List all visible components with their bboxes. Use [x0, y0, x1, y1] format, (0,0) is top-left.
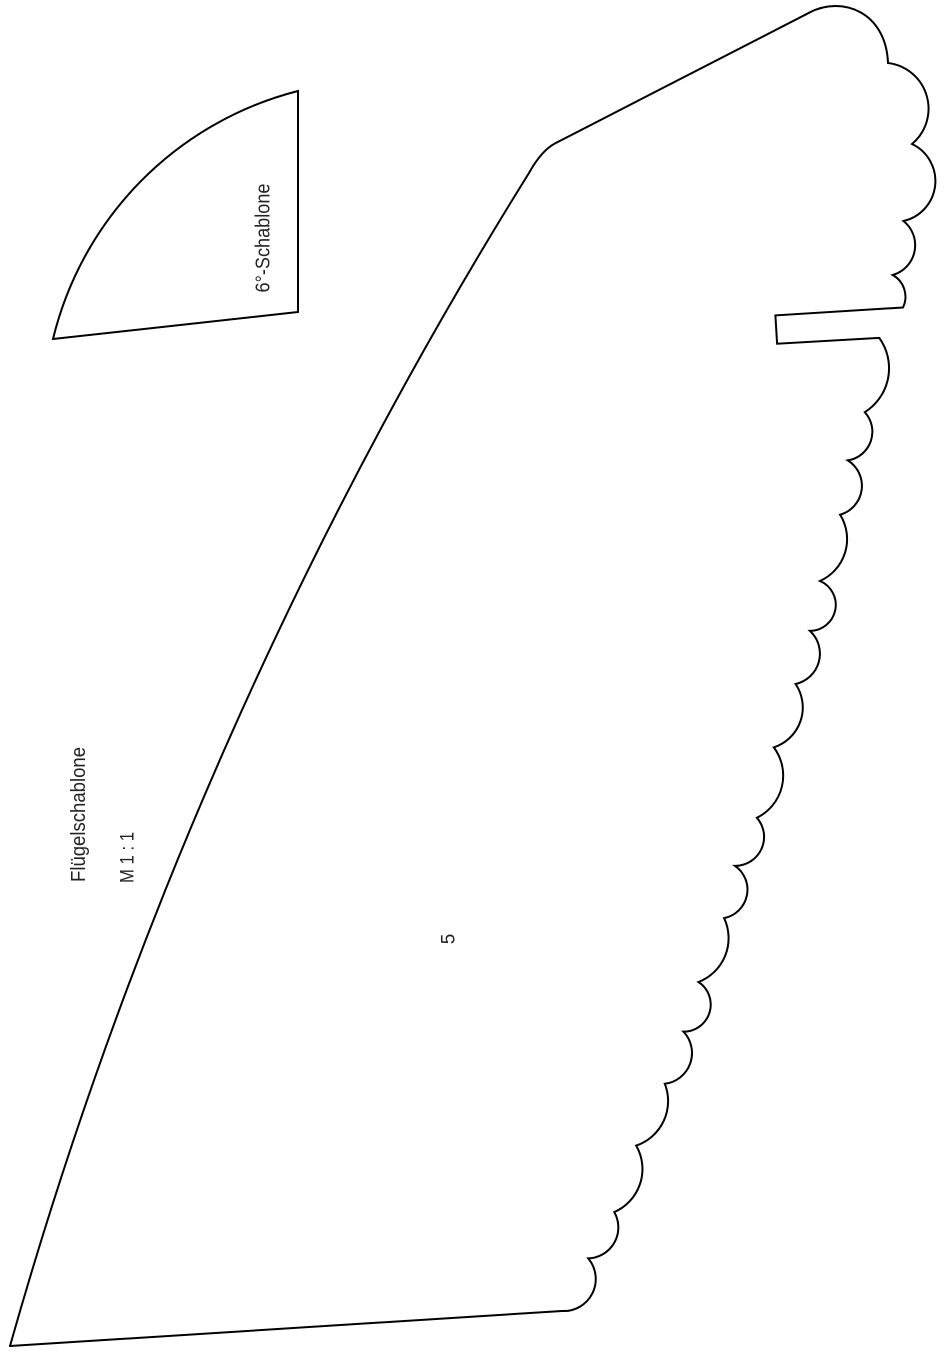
svg-text:Flügelschablone: Flügelschablone — [68, 747, 90, 882]
svg-text:6°-Schablone: 6°-Schablone — [253, 184, 275, 293]
svg-text:5: 5 — [439, 934, 460, 945]
svg-text:M 1 : 1: M 1 : 1 — [117, 832, 139, 883]
